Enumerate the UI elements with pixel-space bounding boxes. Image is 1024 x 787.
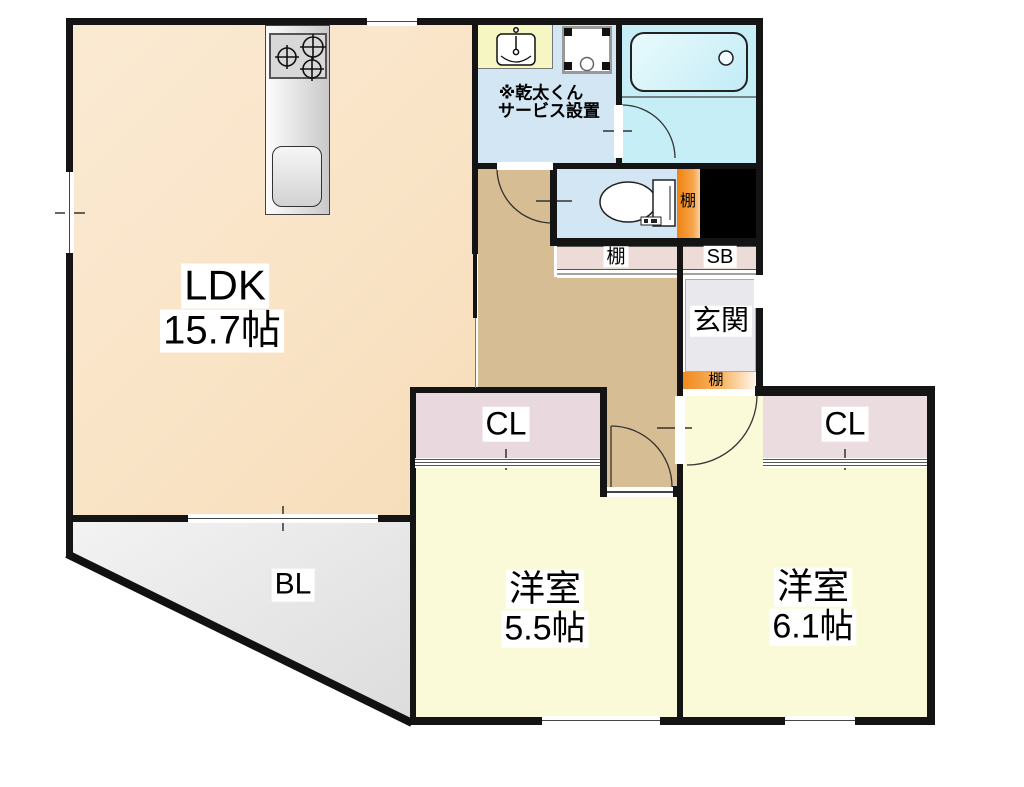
kitchen-sink [272, 146, 322, 207]
floorplan-canvas: LDK 15.7帖 洋室 5.5帖 洋室 6.1帖 BL CL CL 玄関 SB… [0, 0, 1024, 787]
hallway-alcove [607, 390, 677, 496]
wall-ldk-east-upper [472, 18, 478, 254]
door-opening-bath [614, 105, 623, 158]
closet-left-label: CL [483, 407, 530, 442]
bedroom-right-label: 洋室 [774, 568, 852, 607]
window-bedroom-left-south [542, 716, 660, 725]
wall-ldk-east-mid [473, 252, 477, 318]
bedroom-left-label: 洋室 [506, 570, 584, 609]
wall-bath-west [616, 25, 622, 107]
vanity-unit [478, 25, 553, 69]
balcony-label: BL [272, 569, 315, 602]
wall-right-lower [927, 386, 935, 725]
stove [269, 33, 327, 79]
door-opening-washroom [497, 162, 553, 170]
wall-closet-left-top [410, 387, 607, 393]
ldk-label: LDK [181, 264, 269, 309]
toilet-room [557, 168, 677, 238]
window-top [367, 17, 417, 26]
dryer-note-line1: ※乾太くん [496, 83, 587, 102]
wall-entrance-west [677, 242, 683, 390]
hallway-mid [478, 277, 677, 390]
entrance-door-gap [754, 275, 764, 308]
wall-bedroom-divider [677, 495, 683, 720]
wall-right-upper [756, 18, 763, 390]
shoe-box-label: SB [704, 246, 737, 268]
wall-closet-right-top [755, 386, 935, 396]
window-left [65, 172, 74, 253]
entrance-label: 玄関 [690, 306, 752, 337]
wall-bedroom-left-west [410, 387, 416, 725]
window-bedroom-right-south [785, 716, 855, 725]
closet-left-sliding-door [415, 458, 600, 468]
door-opening-bedroom-right [675, 396, 685, 464]
bathtub [630, 32, 748, 92]
wall-threshold-stub [672, 486, 683, 497]
wall-toilet-west [550, 168, 557, 240]
balcony-diagonal-wall [67, 554, 412, 723]
shelf-entrance-label: 棚 [705, 371, 726, 388]
closet-right-sliding-door [763, 458, 927, 468]
wall-ldk-east-opening-line [475, 318, 476, 388]
wall-closet-left-east [600, 390, 607, 497]
wall-bottom [410, 717, 935, 725]
dryer-note-line2: サービス設置 [495, 101, 603, 120]
ldk-size-label: 15.7帖 [160, 310, 284, 353]
closet-right-label: CL [822, 407, 869, 442]
shoe-box-open-front [683, 270, 756, 278]
hallway-upper [478, 168, 554, 280]
wall-toilet-bottom [550, 238, 763, 246]
shelf-hall-open-front [557, 270, 677, 278]
window-ldk-south [188, 514, 378, 523]
balcony-floor [70, 518, 413, 721]
bedroom-right-size-label: 6.1帖 [769, 609, 856, 646]
shelf-toilet-label: 棚 [677, 193, 699, 211]
bedroom-left-size-label: 5.5帖 [501, 611, 588, 648]
wall-left [66, 18, 73, 558]
washer-pan [562, 26, 612, 74]
pipe-void [700, 163, 763, 245]
shelf-hall-label: 棚 [603, 246, 628, 267]
door-threshold-bedroom-left [607, 487, 673, 497]
